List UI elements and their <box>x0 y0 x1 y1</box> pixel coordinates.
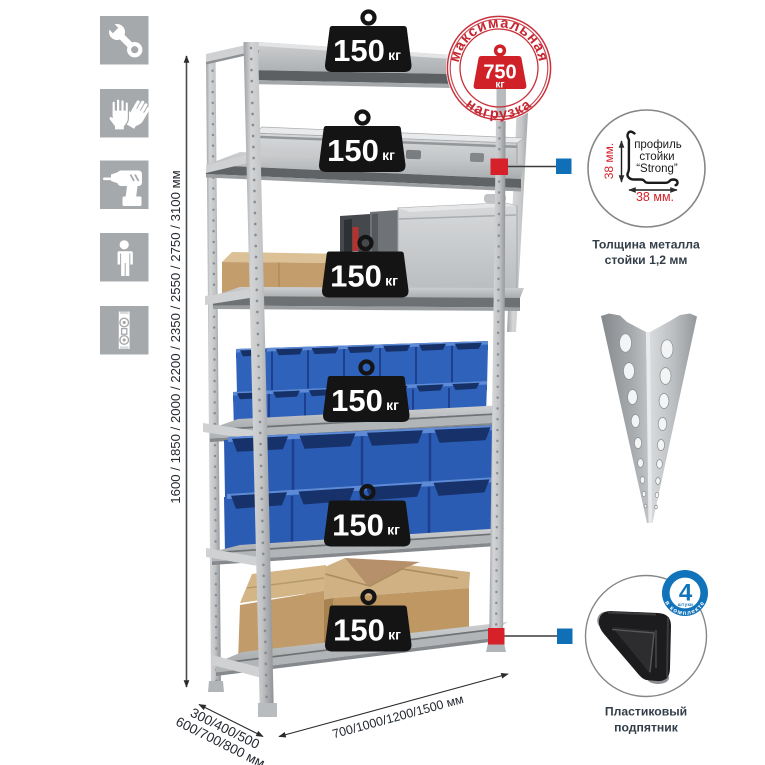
svg-text:38 мм.: 38 мм. <box>602 143 616 180</box>
svg-text:стойки 1,2 мм: стойки 1,2 мм <box>605 253 688 267</box>
svg-text:стойки: стойки <box>639 151 674 163</box>
svg-text:кг: кг <box>495 80 504 91</box>
svg-text:штуки: штуки <box>678 602 693 607</box>
svg-text:профиль: профиль <box>634 139 682 151</box>
svg-text:“Strong”: “Strong” <box>636 163 678 175</box>
svg-text:подпятник: подпятник <box>614 721 679 735</box>
svg-text:Пластиковый: Пластиковый <box>605 705 687 719</box>
svg-text:Толщина металла: Толщина металла <box>592 238 700 252</box>
svg-text:1600 / 1850 / 2000 / 2200 / 23: 1600 / 1850 / 2000 / 2200 / 2350 / 2550 … <box>168 170 183 503</box>
svg-text:150: 150 <box>333 33 385 68</box>
svg-text:38 мм.: 38 мм. <box>636 190 674 204</box>
svg-text:кг: кг <box>388 47 401 63</box>
